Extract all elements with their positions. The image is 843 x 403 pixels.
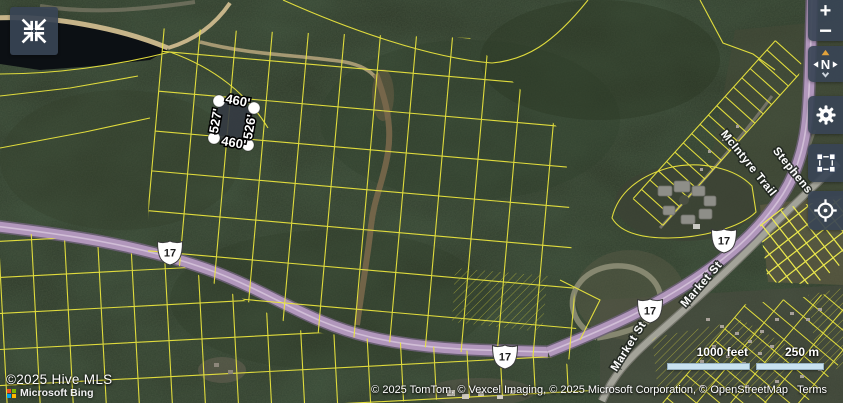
svg-text:17: 17	[718, 236, 730, 248]
copyright-text: © 2025 TomTom, © Vexcel Imaging, © 2025 …	[371, 384, 788, 396]
gear-icon	[811, 100, 841, 130]
compass-north-label: N	[821, 57, 830, 72]
map-settings-button[interactable]	[808, 96, 843, 134]
zoom-out-button[interactable]: −	[808, 18, 843, 44]
parcel-vertex-handle[interactable]	[213, 95, 225, 107]
collapse-map-button[interactable]	[10, 7, 58, 55]
crosshair-locate-icon	[810, 195, 841, 226]
scale-imperial-label: 1000 feet	[667, 345, 748, 359]
draw-polygon-button[interactable]	[808, 144, 843, 182]
bing-attribution-label: Microsoft Bing	[20, 387, 94, 399]
compass-rotation-control[interactable]: N	[808, 46, 843, 82]
svg-text:17: 17	[644, 306, 656, 318]
map-copyright-attribution: © 2025 TomTom, © Vexcel Imaging, © 2025 …	[371, 384, 827, 396]
zoom-control-group: + −	[808, 0, 843, 41]
rotate-right-arrow-icon[interactable]	[833, 61, 838, 67]
locate-me-button[interactable]	[808, 191, 843, 230]
map-canvas[interactable]: McIntyre Trail Stephens Market St Market…	[0, 0, 843, 403]
map-application: McIntyre Trail Stephens Market St Market…	[0, 0, 843, 403]
scale-metric-bar	[756, 363, 824, 370]
rotate-left-arrow-icon[interactable]	[813, 61, 818, 67]
scale-imperial-bar	[667, 363, 750, 370]
terms-link[interactable]: Terms	[797, 384, 827, 396]
scale-metric-label: 250 m	[752, 345, 823, 359]
svg-text:17: 17	[499, 352, 511, 364]
collapse-arrows-icon	[20, 17, 48, 45]
bing-attribution: Microsoft Bing	[7, 387, 94, 399]
mls-attribution: ©2025 Hive MLS	[6, 372, 112, 387]
microsoft-logo-icon	[7, 389, 16, 398]
tilt-down-chevron-icon[interactable]	[823, 73, 829, 76]
polygon-select-icon	[811, 148, 841, 178]
compass-north-arrow	[822, 50, 830, 55]
svg-text:17: 17	[164, 248, 176, 260]
compass-icon: N	[808, 46, 843, 82]
